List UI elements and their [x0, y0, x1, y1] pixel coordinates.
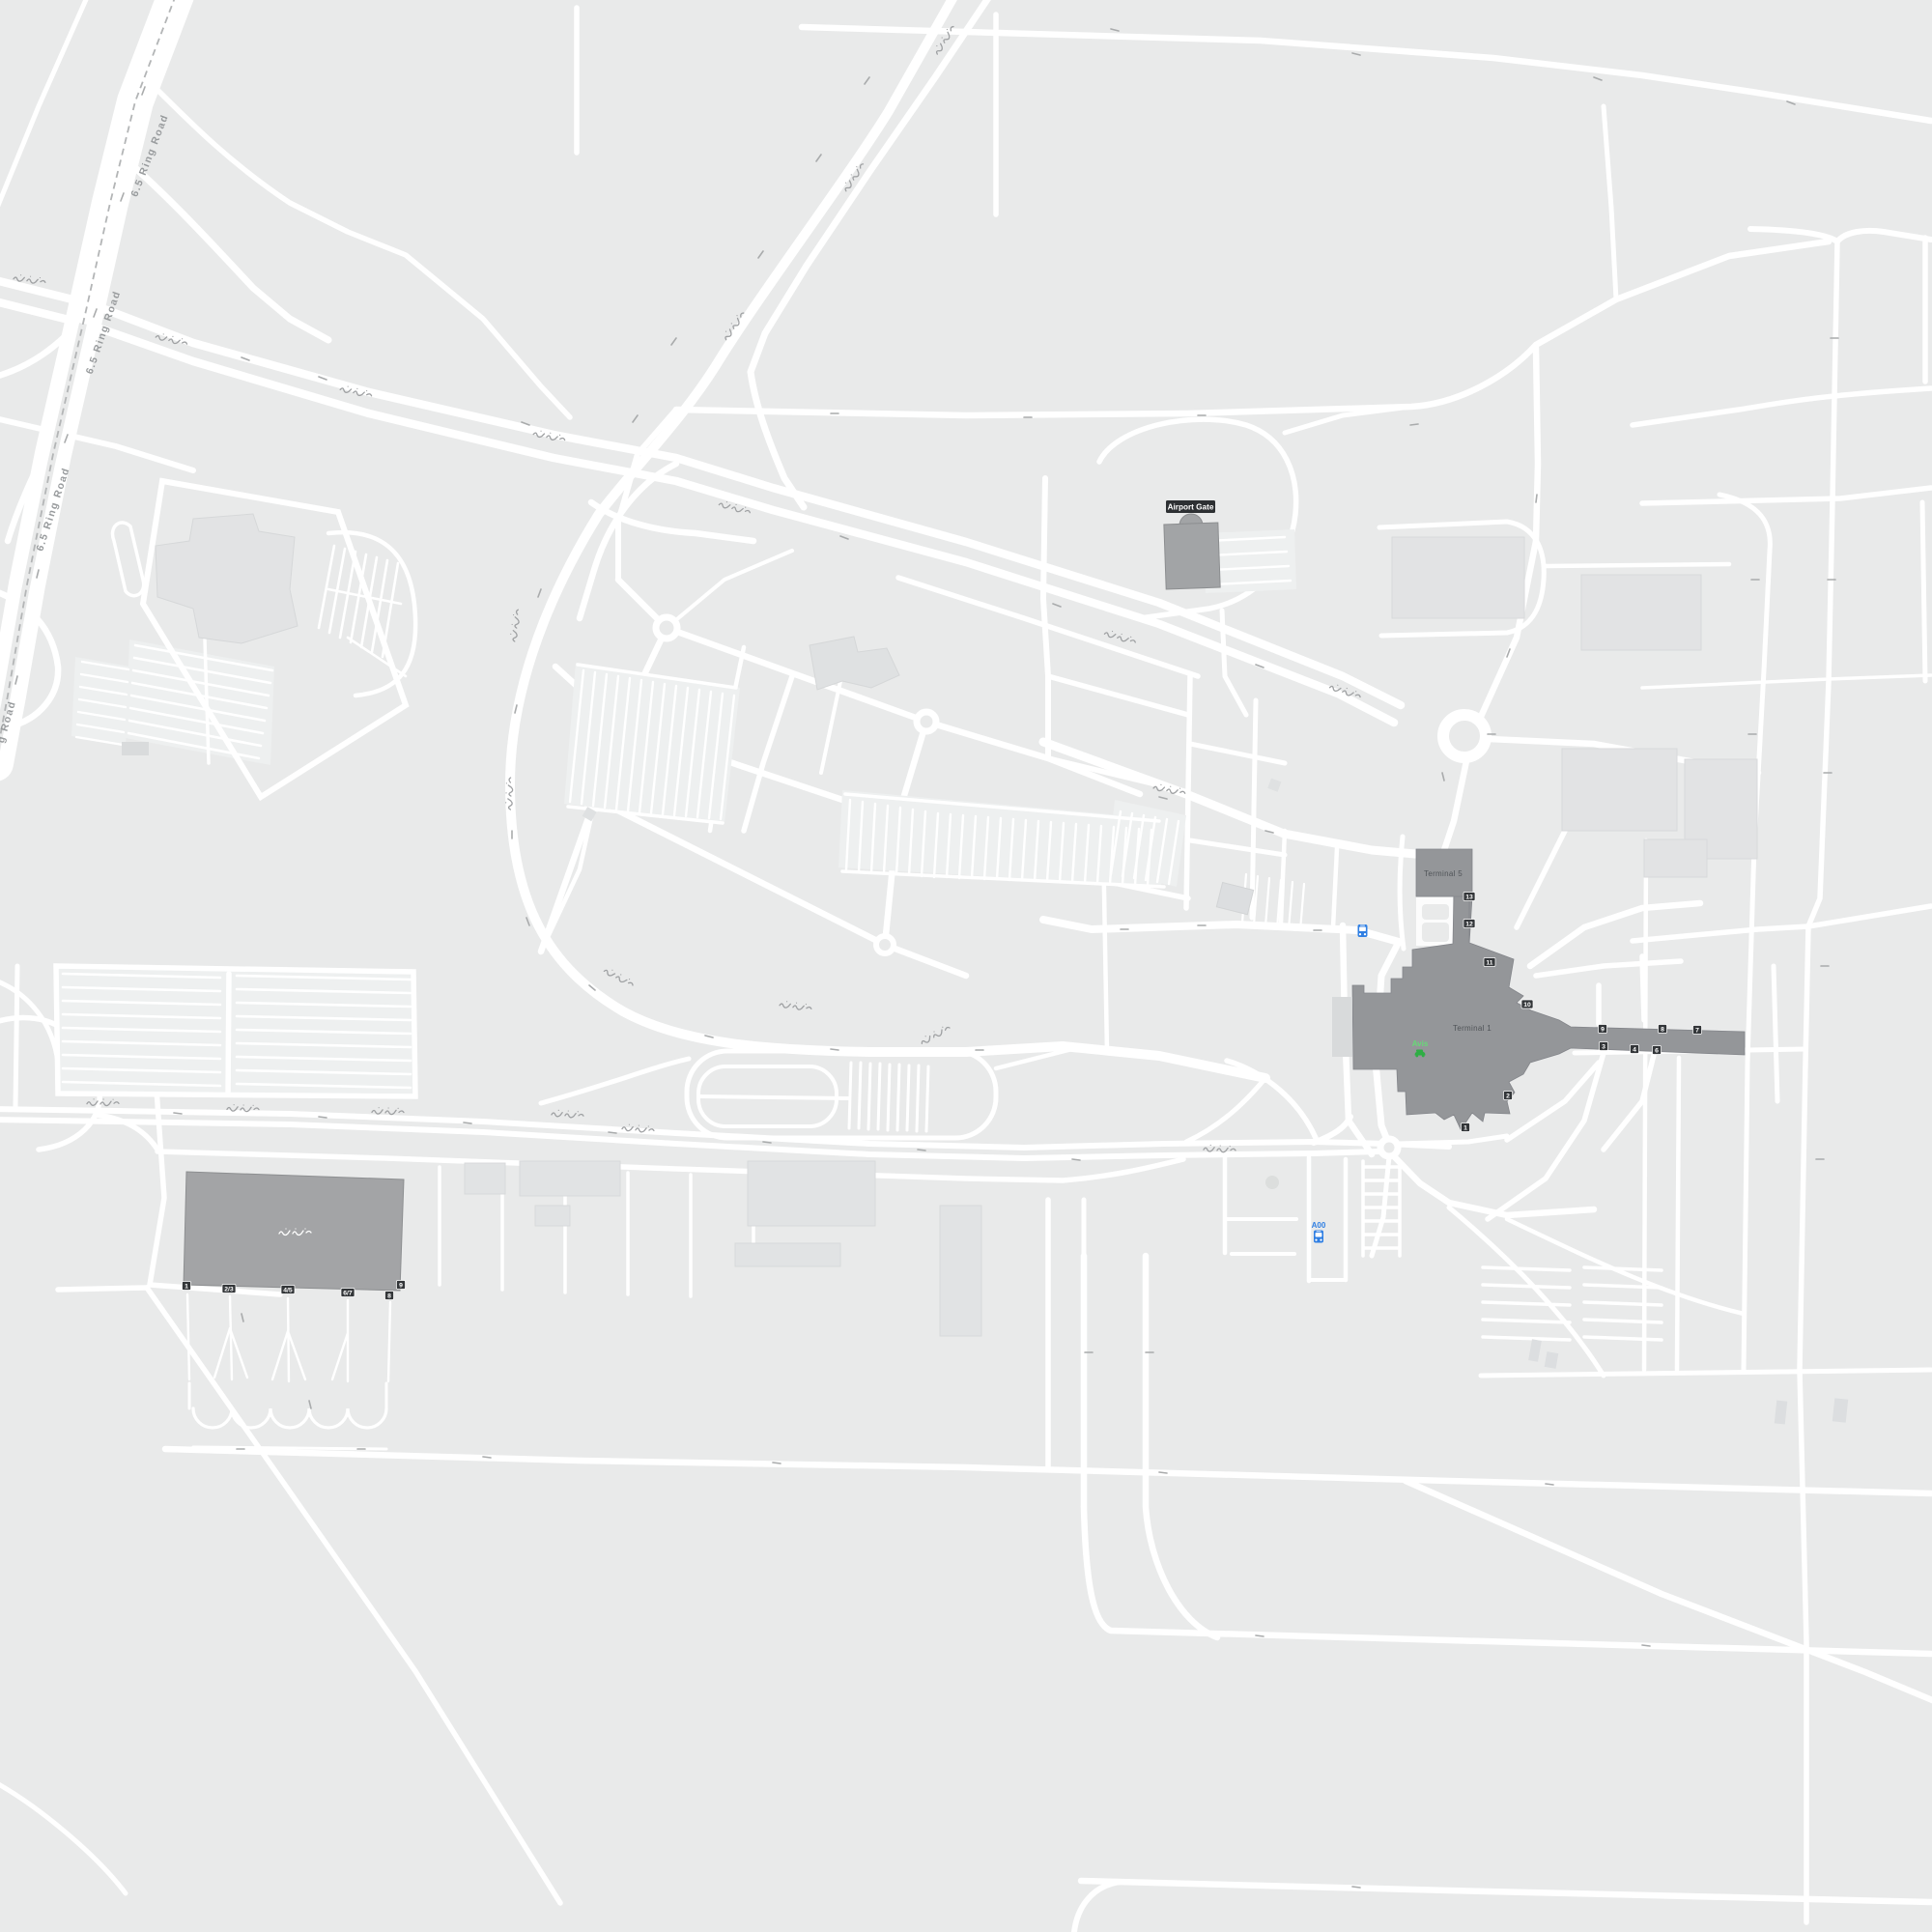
svg-text:3: 3	[1602, 1044, 1605, 1051]
svg-text:8: 8	[387, 1293, 391, 1300]
svg-text:6/7: 6/7	[343, 1291, 353, 1297]
svg-text:Terminal 5: Terminal 5	[1424, 869, 1463, 878]
svg-text:8: 8	[1661, 1027, 1664, 1034]
svg-text:10: 10	[1523, 1002, 1531, 1009]
svg-text:6: 6	[1655, 1048, 1659, 1055]
svg-text:2/3: 2/3	[224, 1287, 234, 1293]
svg-text:12: 12	[1465, 922, 1473, 928]
svg-text:A00: A00	[1312, 1221, 1326, 1230]
svg-text:Avis: Avis	[1412, 1039, 1429, 1048]
svg-text:Terminal 1: Terminal 1	[1453, 1024, 1492, 1033]
svg-text:1: 1	[185, 1284, 188, 1291]
svg-text:13: 13	[1465, 895, 1473, 901]
svg-text:7: 7	[1695, 1028, 1699, 1035]
svg-text:4: 4	[1633, 1047, 1636, 1054]
svg-text:9: 9	[1601, 1027, 1605, 1034]
svg-text:4/5: 4/5	[283, 1288, 293, 1294]
svg-text:1: 1	[1463, 1125, 1467, 1132]
svg-text:2: 2	[1506, 1094, 1510, 1100]
svg-text:Airport Gate: Airport Gate	[1168, 503, 1214, 512]
svg-text:9: 9	[399, 1283, 403, 1290]
svg-text:11: 11	[1486, 960, 1492, 967]
